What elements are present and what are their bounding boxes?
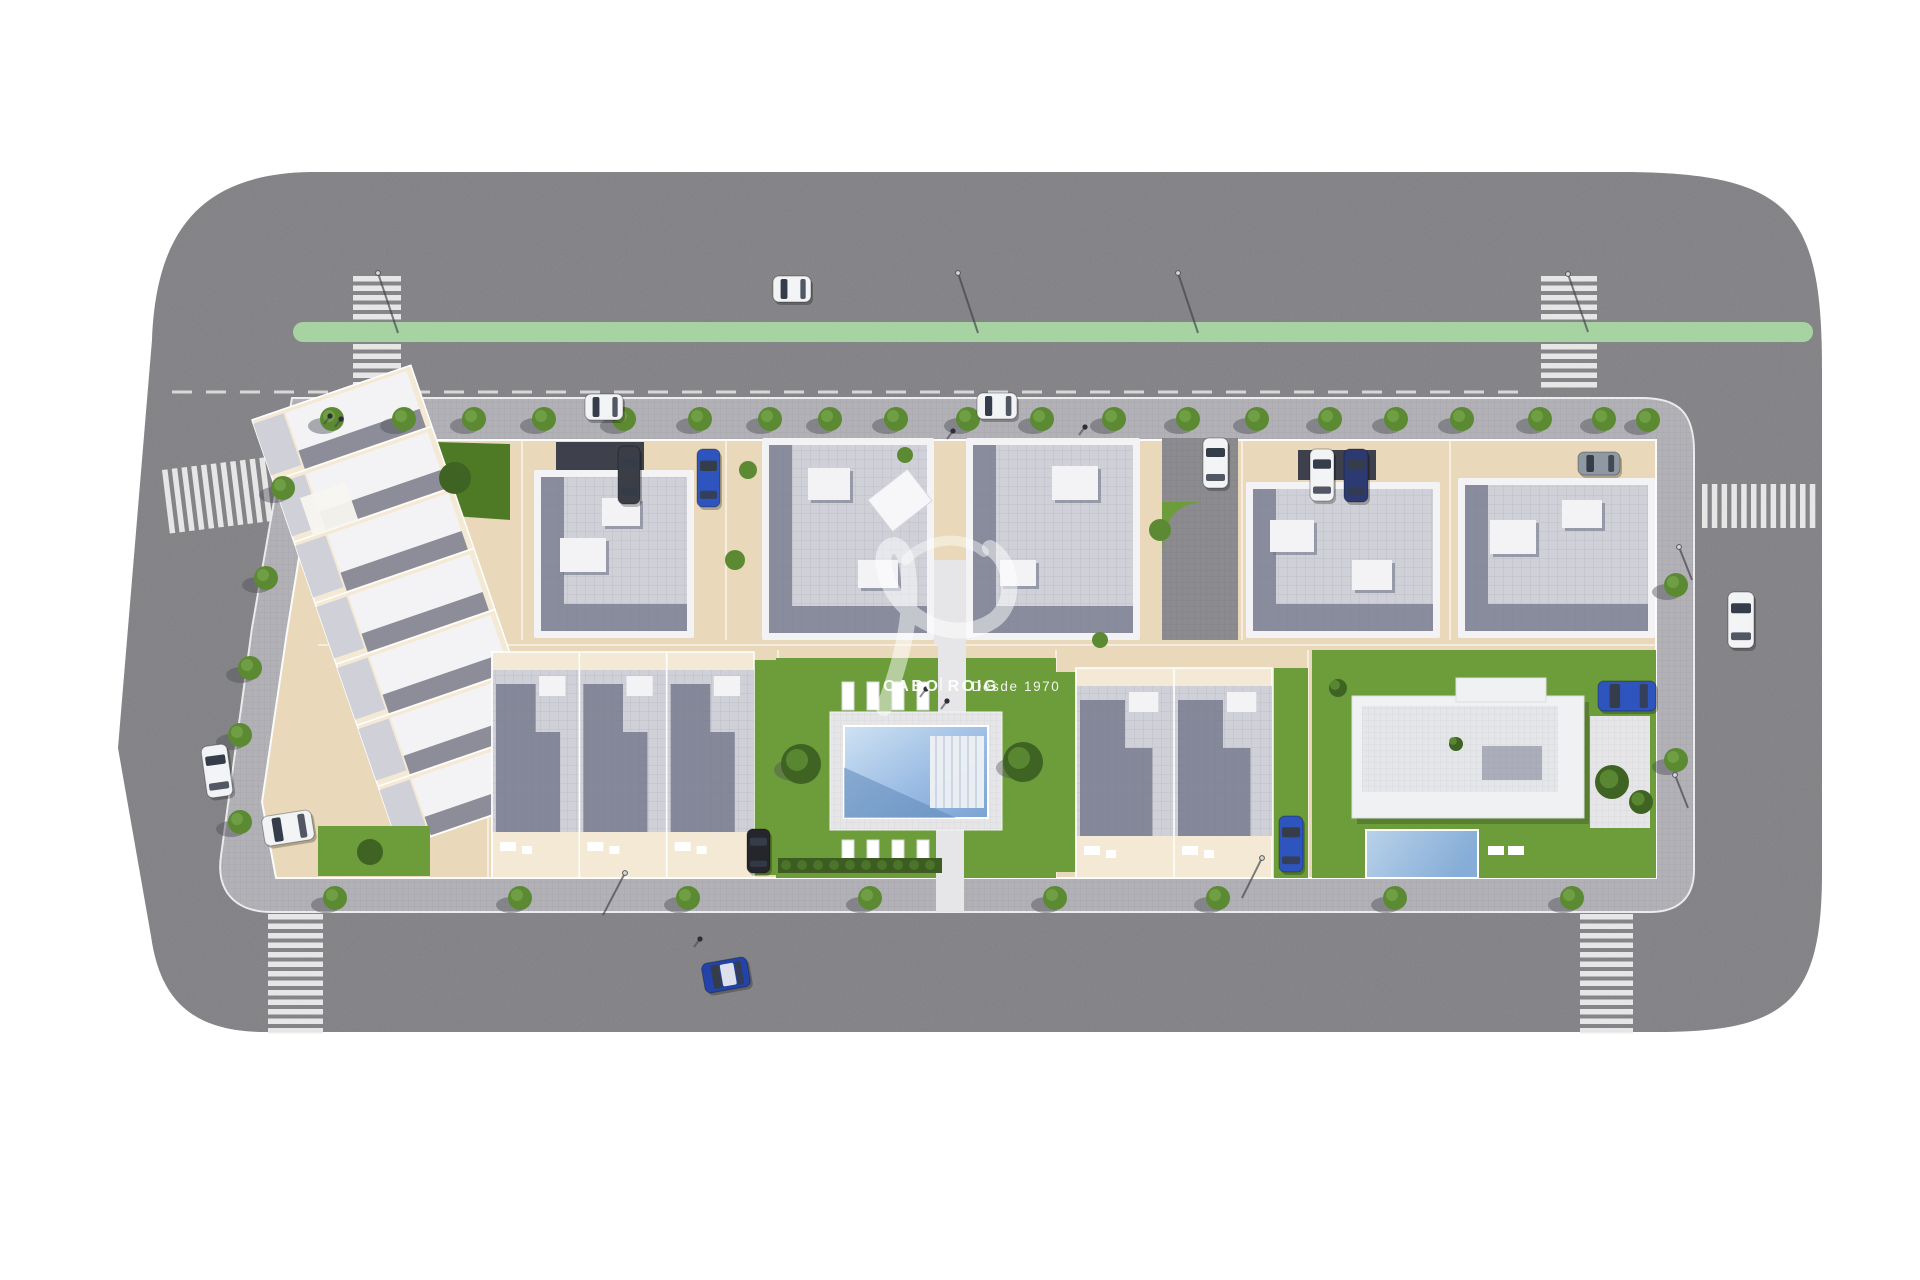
tree — [274, 479, 286, 491]
street-lamp — [1677, 545, 1682, 550]
crosswalk-stripe — [353, 363, 401, 369]
car-rear-window — [750, 861, 767, 867]
crosswalk-stripe — [1800, 484, 1806, 528]
crosswalk-stripe — [268, 1009, 323, 1015]
crosswalk-stripe — [1741, 484, 1747, 528]
roof-structure — [539, 676, 565, 696]
crosswalk-stripe — [1722, 484, 1728, 528]
tree — [1179, 410, 1191, 422]
crosswalk-stripe — [1580, 943, 1633, 949]
crosswalk-stripe — [1810, 484, 1816, 528]
pedestrian — [1082, 424, 1087, 429]
tree — [465, 410, 477, 422]
patio-furniture — [1084, 846, 1100, 855]
crosswalk-stripe — [1541, 363, 1597, 369]
crosswalk-stripe — [1580, 1019, 1633, 1025]
crosswalk-stripe — [1580, 914, 1633, 920]
tree — [1387, 410, 1399, 422]
crosswalk-stripe — [1731, 484, 1737, 528]
tree — [231, 813, 243, 825]
street-lamp — [1260, 856, 1265, 861]
car-windshield — [781, 279, 788, 299]
tree — [1046, 889, 1058, 901]
car-rear-window — [1313, 486, 1331, 493]
garden-bush — [1631, 792, 1644, 805]
car-roof — [993, 397, 1005, 415]
tree — [959, 410, 971, 422]
crosswalk-stripe — [1541, 354, 1597, 360]
crosswalk-stripe — [353, 354, 401, 360]
crosswalk-stripe — [1580, 1028, 1633, 1034]
crosswalk-stripe — [1541, 373, 1597, 379]
garden-bush — [1092, 632, 1108, 648]
car-roof — [1348, 470, 1364, 486]
hedge-plant — [861, 860, 871, 870]
patio-furniture — [675, 842, 691, 851]
garden-bush — [1149, 519, 1171, 541]
car-rear-window — [1282, 856, 1300, 864]
garden-bush — [897, 447, 913, 463]
crosswalk-stripe — [1790, 484, 1796, 528]
car-roof — [788, 280, 799, 298]
villa-roof-shadow — [1482, 746, 1542, 780]
car — [1578, 452, 1622, 478]
roof-structure — [1227, 692, 1256, 712]
crosswalk-stripe — [1541, 286, 1597, 292]
car-roof — [701, 472, 716, 489]
tree — [511, 889, 523, 901]
tree — [1321, 410, 1333, 422]
roof-structure — [1129, 692, 1158, 712]
crosswalk-stripe — [268, 981, 323, 987]
crosswalk-stripe — [1580, 933, 1633, 939]
car-rear-window — [1206, 474, 1225, 481]
street-lamp — [956, 271, 961, 276]
pedestrian — [338, 416, 343, 421]
car-windshield — [593, 397, 600, 417]
garden-bush — [1600, 770, 1619, 789]
tree — [1453, 410, 1465, 422]
tree — [231, 726, 243, 738]
tree — [1531, 410, 1543, 422]
car-roof — [1314, 470, 1330, 486]
car-windshield — [1282, 827, 1300, 837]
car — [1310, 449, 1336, 504]
sun-lounger — [842, 682, 854, 710]
crosswalk-stripe — [268, 952, 323, 958]
crosswalk-stripe — [1780, 484, 1786, 528]
car-rear-window — [1608, 455, 1614, 472]
roof-structure — [1352, 560, 1392, 590]
street-lamp — [376, 271, 381, 276]
car-rear-window — [700, 491, 717, 499]
tree — [395, 410, 407, 422]
car — [697, 449, 722, 510]
tree — [691, 410, 703, 422]
crosswalk-stripe — [268, 914, 323, 920]
sun-lounger — [1508, 846, 1524, 855]
car — [1203, 438, 1230, 491]
car-windshield — [1586, 455, 1594, 472]
crosswalk-stripe — [1541, 344, 1597, 350]
apartment-building — [534, 442, 694, 638]
car-rear-window — [800, 279, 805, 299]
hedge-plant — [781, 860, 791, 870]
crosswalk-stripe — [1580, 990, 1633, 996]
crosswalk-stripe — [268, 943, 323, 949]
roof-structure — [1490, 520, 1536, 554]
crosswalk-stripe — [1580, 924, 1633, 930]
tree — [326, 889, 338, 901]
car — [773, 276, 813, 305]
crosswalk-stripe — [1761, 484, 1767, 528]
hedge-plant — [829, 860, 839, 870]
crosswalk-stripe — [353, 305, 401, 311]
crosswalk-stripe — [1751, 484, 1757, 528]
crosswalk-stripe — [1541, 295, 1597, 301]
car — [1728, 592, 1756, 651]
hedge-plant — [813, 860, 823, 870]
pedestrian — [697, 936, 702, 941]
tree — [821, 410, 833, 422]
car-roof — [1732, 614, 1750, 631]
street-lamp — [1673, 773, 1678, 778]
crosswalk-stripe — [353, 276, 401, 282]
hedge-plant — [925, 860, 935, 870]
crosswalk-stripe — [1580, 952, 1633, 958]
watermark-tagline: Desde 1970 — [972, 679, 1061, 694]
crosswalk-stripe — [1771, 484, 1777, 528]
crosswalk-stripe — [268, 933, 323, 939]
tree — [1386, 889, 1398, 901]
patio-furniture — [522, 846, 532, 854]
car-rear-window — [1731, 632, 1751, 640]
patio-furniture — [500, 842, 516, 851]
car — [747, 829, 772, 876]
villa-pool — [1366, 830, 1478, 878]
hedge-plant — [845, 860, 855, 870]
crosswalk-stripe — [1580, 1000, 1633, 1006]
garden-bush — [786, 749, 808, 771]
car-rear-window — [621, 488, 637, 496]
site-plan-render: CABO ROIG Desde 1970 — [0, 0, 1920, 1280]
roof-structure — [626, 676, 652, 696]
pedestrian — [950, 428, 955, 433]
car-roof — [1621, 685, 1638, 707]
car-rear-window — [612, 397, 617, 417]
tree — [761, 410, 773, 422]
tree — [887, 410, 899, 422]
crosswalk-stripe — [353, 295, 401, 301]
watermark-divider — [940, 677, 941, 691]
car-roof — [207, 765, 227, 783]
hedge-plant — [893, 860, 903, 870]
tree — [1595, 410, 1607, 422]
car-roof — [751, 847, 766, 860]
pedestrian — [944, 698, 949, 703]
townhouse-row — [1052, 668, 1308, 878]
garden-bush — [1008, 747, 1030, 769]
roof-structure — [1270, 520, 1314, 552]
tree — [861, 889, 873, 901]
crosswalk-stripe — [268, 1028, 323, 1034]
villa-wing — [1456, 678, 1546, 702]
apartment-building — [1458, 478, 1655, 638]
apartment-building — [966, 438, 1140, 640]
roof-structure — [1052, 466, 1098, 500]
car-windshield — [1313, 459, 1331, 468]
roof-structure — [714, 676, 740, 696]
car-rear-window — [1640, 684, 1648, 708]
car — [585, 394, 625, 423]
tree — [679, 889, 691, 901]
hedge-plant — [877, 860, 887, 870]
crosswalk-stripe — [1702, 484, 1708, 528]
crosswalk-stripe — [268, 1000, 323, 1006]
patio-furniture — [1106, 850, 1116, 858]
roof-structure — [1562, 500, 1602, 528]
street-lamp — [1176, 271, 1181, 276]
car-windshield — [985, 396, 992, 416]
garden-bush — [439, 462, 471, 494]
car-roof — [1283, 838, 1299, 855]
car-roof — [1595, 456, 1608, 471]
tree — [1667, 751, 1679, 763]
tree — [1033, 410, 1045, 422]
car-windshield — [750, 838, 767, 846]
sun-lounger — [1488, 846, 1504, 855]
hedge-plant — [909, 860, 919, 870]
tree — [1209, 889, 1221, 901]
crosswalk-stripe — [1541, 314, 1597, 320]
car-rear-window — [1347, 487, 1365, 494]
crosswalk-stripe — [1580, 962, 1633, 968]
street-lamp — [623, 871, 628, 876]
tree — [1105, 410, 1117, 422]
car-windshield — [1731, 603, 1751, 613]
car-roof — [622, 469, 636, 486]
tree — [1667, 576, 1679, 588]
garden-bush — [739, 461, 757, 479]
crosswalk-stripe — [268, 924, 323, 930]
hedge-plant — [797, 860, 807, 870]
garden-bush — [1449, 737, 1457, 745]
pedestrian — [327, 413, 332, 418]
crosswalk-stripe — [268, 971, 323, 977]
car — [1598, 681, 1658, 714]
crosswalk-stripe — [1541, 305, 1597, 311]
tree — [1639, 411, 1651, 423]
car — [1344, 449, 1370, 505]
crosswalk-stripe — [1580, 971, 1633, 977]
street-lamp — [1566, 272, 1571, 277]
garden-bush — [1330, 680, 1340, 690]
car-windshield — [700, 461, 717, 471]
garden-bush — [725, 550, 745, 570]
crosswalk-stripe — [1712, 484, 1718, 528]
car-windshield — [1347, 460, 1365, 470]
crosswalk-stripe — [1541, 382, 1597, 388]
patio-furniture — [609, 846, 619, 854]
page: CABO ROIG Desde 1970 — [0, 0, 1920, 1280]
patio-furniture — [697, 846, 707, 854]
crosswalk-stripe — [268, 990, 323, 996]
patio-furniture — [1204, 850, 1214, 858]
garden-bush — [357, 839, 383, 865]
car-roof — [600, 398, 611, 416]
townhouse-row — [492, 652, 776, 878]
tree — [535, 410, 547, 422]
crosswalk-stripe — [353, 286, 401, 292]
patio-furniture — [1182, 846, 1198, 855]
tree — [1563, 889, 1575, 901]
roof-structure — [560, 538, 606, 572]
crosswalk-stripe — [268, 962, 323, 968]
crosswalk-stripe — [353, 344, 401, 350]
crosswalk-stripe — [1580, 981, 1633, 987]
roof-structure — [808, 468, 850, 500]
patio-furniture — [587, 842, 603, 851]
crosswalk-stripe — [1580, 1009, 1633, 1015]
car — [618, 446, 642, 507]
tree — [257, 569, 269, 581]
car — [1279, 816, 1305, 875]
tree — [241, 659, 253, 671]
car — [977, 393, 1019, 422]
tree — [1248, 410, 1260, 422]
car-windshield — [621, 458, 637, 468]
car-windshield — [1610, 684, 1620, 708]
car-roof — [1207, 458, 1224, 473]
car-windshield — [1206, 448, 1225, 457]
car-rear-window — [1006, 396, 1012, 416]
crosswalk-stripe — [268, 1019, 323, 1025]
